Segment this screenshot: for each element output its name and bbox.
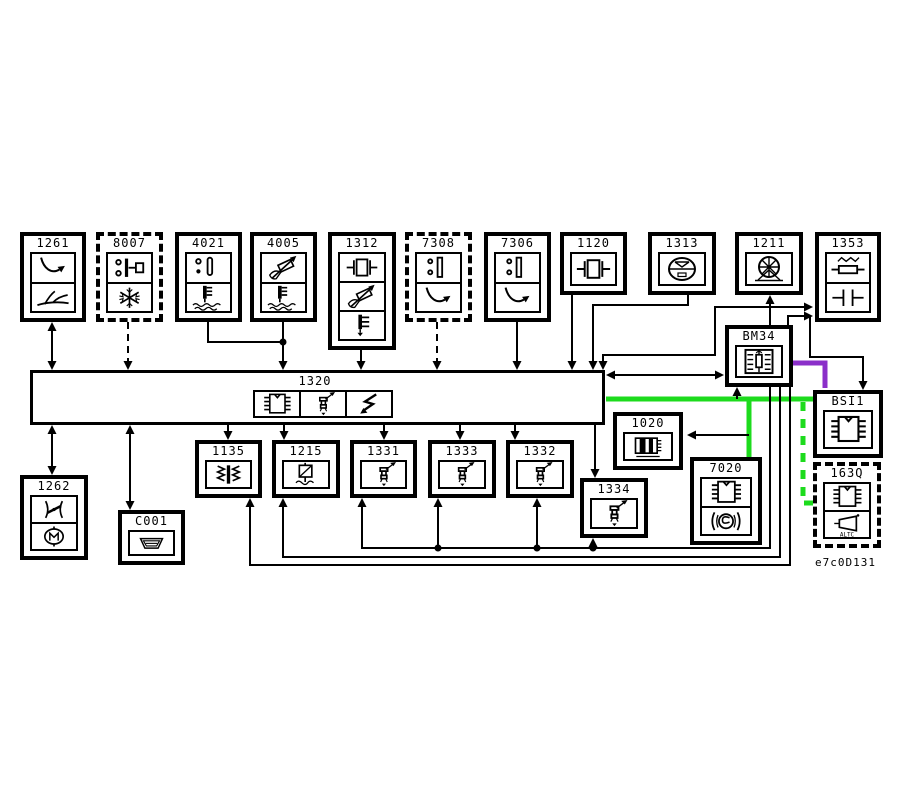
component-icon-area [106, 252, 153, 313]
component-box-1312: 1312 [328, 232, 396, 350]
component-icon-area [590, 498, 638, 529]
component-box-163Q: 163QALTC [813, 462, 881, 548]
component-icon-area [823, 410, 873, 449]
component-box-1353: 1353 [815, 232, 881, 322]
component-label-1312: 1312 [332, 236, 392, 250]
component-box-1320: 1320 [30, 370, 605, 425]
component-icon-area [570, 252, 617, 286]
component-label-1333: 1333 [432, 444, 492, 458]
component-box-1313: 1313 [648, 232, 716, 295]
motor-icon [30, 522, 78, 551]
ic-chip-icon [700, 477, 752, 508]
resistor-icon [825, 252, 871, 284]
ic-chip-icon [823, 482, 871, 512]
component-label-1261: 1261 [24, 236, 82, 250]
component-icon-area [658, 252, 706, 286]
component-label-BM34: BM34 [729, 329, 789, 343]
component-label-1120: 1120 [564, 236, 623, 250]
curve-arrow-icon [494, 282, 541, 314]
component-icon-area [185, 252, 232, 313]
two-dot-switch-icon [415, 252, 462, 284]
component-icon-area [735, 345, 783, 378]
component-box-1215: 1215 [272, 440, 340, 498]
component-label-7020: 7020 [694, 461, 758, 475]
component-box-1332: 1332 [506, 440, 574, 498]
injector-icon [516, 460, 564, 489]
component-icon-area [128, 530, 175, 556]
component-icon-area [745, 252, 793, 286]
component-box-1020: 1020 [613, 412, 683, 470]
diagram-canvas: 1261800740214005131273087306112013131211… [0, 0, 900, 800]
component-box-1261: 1261 [20, 232, 86, 322]
component-label-1215: 1215 [276, 444, 336, 458]
lightning-icon [345, 390, 393, 418]
component-icon-area [30, 252, 76, 313]
alternator-icon [623, 432, 673, 461]
level-probe-icon [185, 252, 232, 284]
component-label-1313: 1313 [652, 236, 712, 250]
component-label-1334: 1334 [584, 482, 644, 496]
two-dot-switch-icon [494, 252, 541, 284]
pressure-switch-icon [106, 252, 153, 284]
component-box-1331: 1331 [350, 440, 417, 498]
sensor-arrow-icon [260, 252, 307, 284]
capacitor-box-icon [338, 252, 386, 283]
gauge-icon [658, 252, 706, 286]
thermo-liquid-icon [185, 282, 232, 314]
injector-icon [299, 390, 347, 418]
component-box-BSI1: BSI1 [813, 390, 883, 458]
component-icon-area [338, 252, 386, 341]
capacitor-box-icon [570, 252, 617, 286]
diagram-code-label: e7c0D131 [815, 556, 876, 569]
injector-icon [590, 498, 638, 529]
component-box-8007: 8007 [96, 232, 163, 322]
component-icon-area [30, 495, 78, 551]
component-label-1020: 1020 [617, 416, 679, 430]
component-box-7306: 7306 [484, 232, 551, 322]
component-icon-area [494, 252, 541, 313]
sensor-arrow-icon [338, 281, 386, 312]
component-icon-area [260, 252, 307, 313]
component-box-4005: 4005 [250, 232, 317, 322]
injector-icon [438, 460, 486, 489]
component-label-7308: 7308 [409, 236, 468, 250]
component-box-BM34: BM34 [725, 325, 793, 387]
component-label-7306: 7306 [488, 236, 547, 250]
svg-text:ALTC: ALTC [840, 531, 855, 537]
pump-coil-icon [700, 506, 752, 537]
component-box-1333: 1333 [428, 440, 496, 498]
ic-chip-icon [253, 390, 301, 418]
component-icon-area [360, 460, 407, 489]
component-box-7020: 7020 [690, 457, 762, 545]
component-box-7308: 7308 [405, 232, 472, 322]
throttle-actuator-icon [282, 460, 330, 489]
component-icon-area [205, 460, 252, 489]
component-box-C001: C001 [118, 510, 185, 565]
thermo-liquid-icon [260, 282, 307, 314]
thermo-comb-icon [338, 310, 386, 341]
component-box-1334: 1334 [580, 478, 648, 538]
component-label-1331: 1331 [354, 444, 413, 458]
component-label-C001: C001 [122, 514, 181, 528]
snowflake-icon [106, 282, 153, 314]
component-label-1353: 1353 [819, 236, 877, 250]
component-icon-area [438, 460, 486, 489]
component-box-1262: 1262 [20, 475, 88, 560]
component-icon-area [253, 390, 393, 418]
capacitor-lines-icon [825, 282, 871, 314]
curve-arrow-icon [415, 282, 462, 314]
component-box-1135: 1135 [195, 440, 262, 498]
fan-pump-icon [745, 252, 793, 286]
component-icon-area [516, 460, 564, 489]
fork-road-icon [30, 282, 76, 314]
component-box-4021: 4021 [175, 232, 242, 322]
butterfly-valve-icon [30, 495, 78, 524]
component-label-1332: 1332 [510, 444, 570, 458]
component-icon-area [700, 477, 752, 536]
component-label-1211: 1211 [739, 236, 799, 250]
component-label-4005: 4005 [254, 236, 313, 250]
component-label-1320: 1320 [283, 374, 347, 388]
ic-chip-icon [823, 410, 873, 449]
component-label-4021: 4021 [179, 236, 238, 250]
component-icon-area: ALTC [823, 482, 871, 539]
component-icon-area [415, 252, 462, 313]
fuse-box-icon [735, 345, 783, 378]
curve-arrow-icon [30, 252, 76, 284]
diag-connector-icon [128, 530, 175, 556]
component-box-1120: 1120 [560, 232, 627, 295]
component-box-1211: 1211 [735, 232, 803, 295]
component-label-1262: 1262 [24, 479, 84, 493]
ignition-coil-icon [205, 460, 252, 489]
component-icon-area [825, 252, 871, 313]
component-label-163Q: 163Q [817, 466, 877, 480]
horn-icon: ALTC [823, 510, 871, 540]
component-icon-area [282, 460, 330, 489]
component-label-1135: 1135 [199, 444, 258, 458]
component-label-8007: 8007 [100, 236, 159, 250]
component-icon-area [623, 432, 673, 461]
injector-icon [360, 460, 407, 489]
component-layer: 1261800740214005131273087306112013131211… [0, 0, 900, 800]
component-label-BSI1: BSI1 [817, 394, 879, 408]
